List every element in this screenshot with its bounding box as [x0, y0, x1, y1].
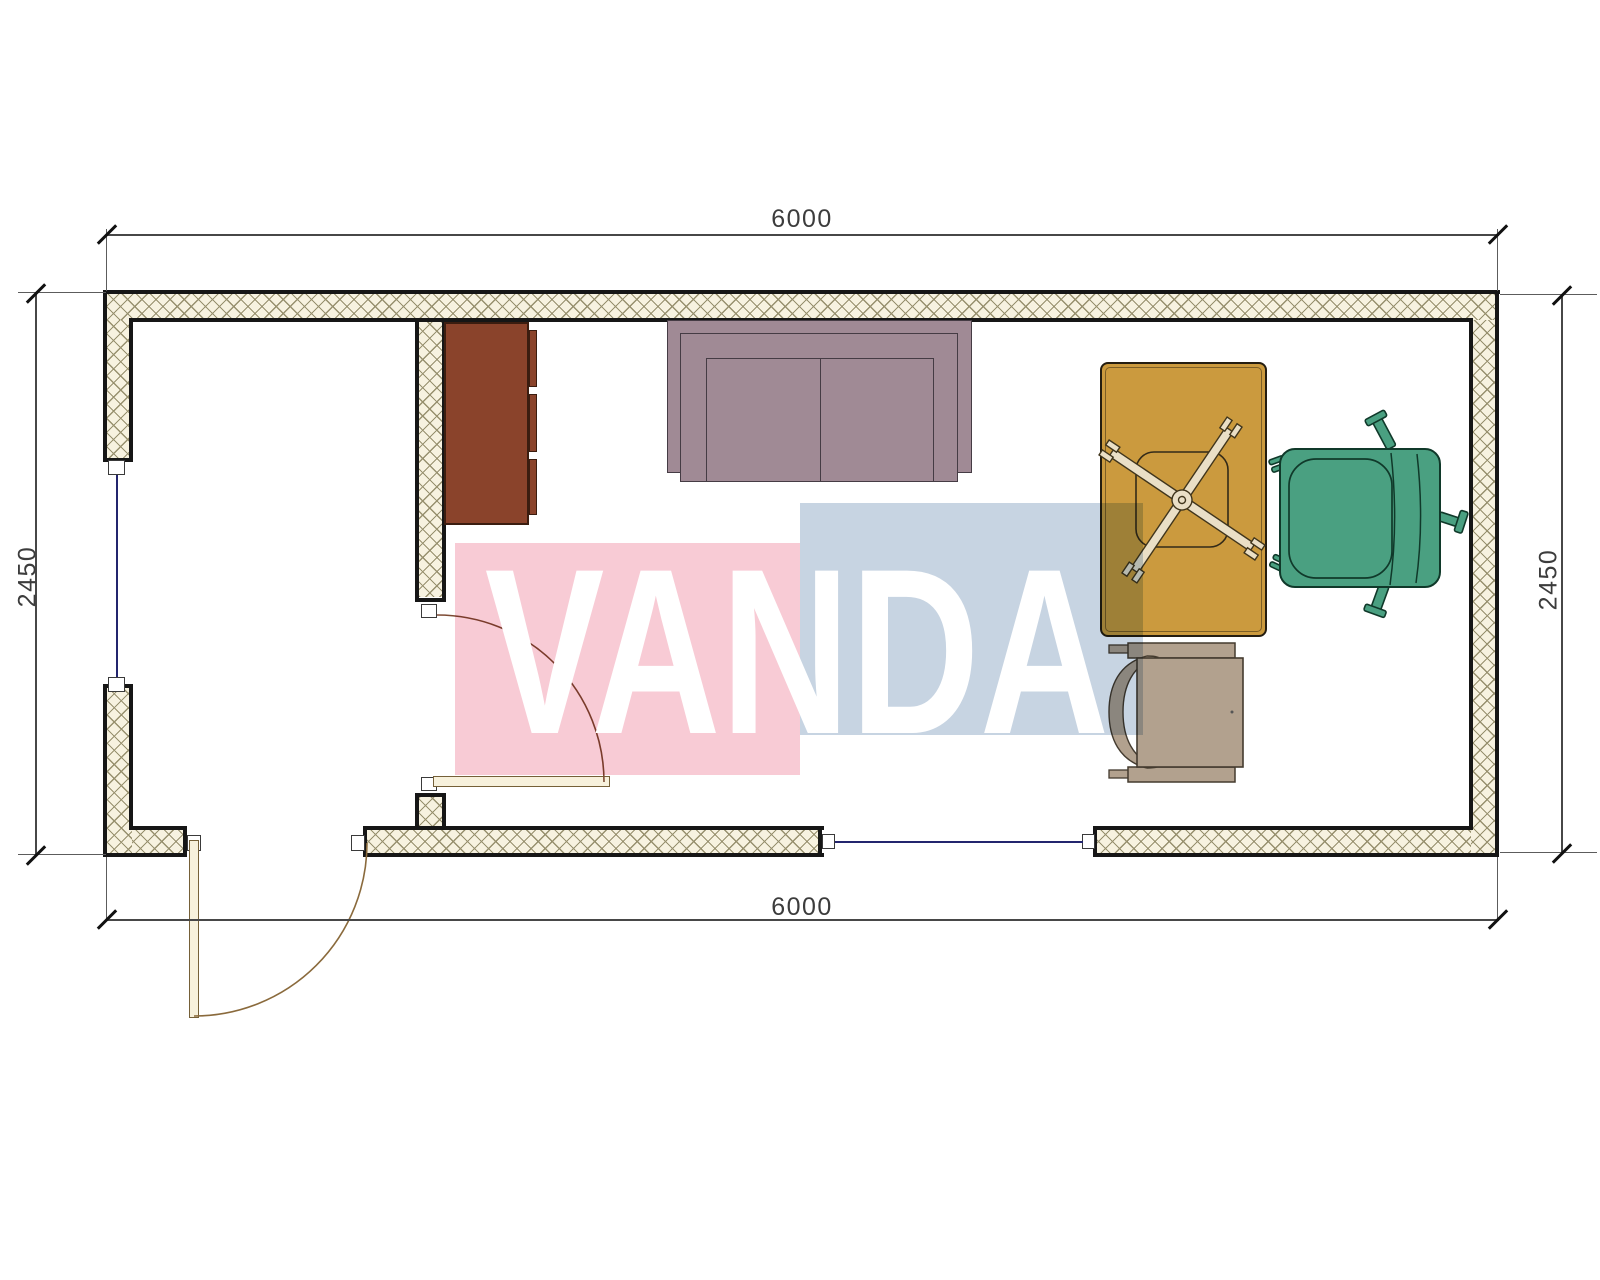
dimension-label-bottom: 6000	[742, 893, 862, 922]
watermark-text: VANDA	[478, 534, 1116, 770]
extension-line	[1500, 294, 1597, 295]
dimension-line-top	[106, 234, 1499, 236]
floor-plan-canvas: VANDA 6000 6000 2450 2450	[0, 0, 1600, 1280]
extension-line	[1500, 852, 1597, 853]
armchair	[1268, 410, 1468, 618]
extension-line	[18, 854, 106, 855]
dimension-label-top: 6000	[742, 205, 862, 234]
dimension-label-left: 2450	[14, 517, 43, 637]
extension-line	[1497, 857, 1498, 920]
extension-line	[1497, 229, 1498, 291]
armchair-cushion	[1289, 459, 1392, 578]
dimension-label-right: 2450	[1535, 520, 1564, 640]
extension-line	[106, 229, 107, 291]
extension-line	[18, 292, 106, 293]
side-chair-seat	[1137, 658, 1243, 767]
exterior-door-swing-arc	[194, 843, 367, 1016]
extension-line	[106, 857, 107, 920]
